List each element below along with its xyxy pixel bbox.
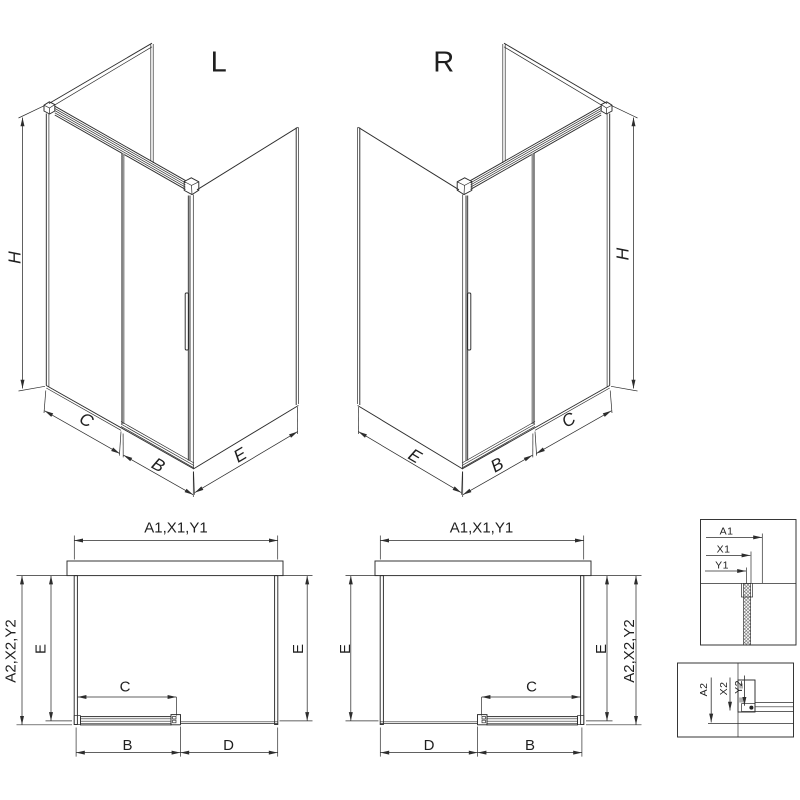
- dim-label-h-left: H: [5, 251, 25, 264]
- wall-hatch-band-right-plan: [375, 561, 591, 576]
- view-label-left: L: [211, 47, 228, 79]
- dim-label-c-left: C: [76, 408, 97, 432]
- plan-right-dim-a1: A1,X1,Y1: [450, 520, 513, 537]
- rail-roller-dot: [749, 706, 753, 710]
- dim-label-b-right: B: [487, 453, 507, 476]
- gasket-mark-bottom: [739, 698, 743, 703]
- plan-right-dim-a2: A2,X2,Y2: [621, 619, 638, 682]
- dim-label-c-right: C: [558, 408, 579, 432]
- view-label-right: R: [433, 47, 454, 79]
- iso-view-right-lines: [358, 43, 638, 497]
- detail-label-y1: Y1: [715, 559, 729, 571]
- plan-left-dim-b: B: [122, 737, 132, 754]
- detail-label-x2: X2: [718, 682, 730, 696]
- plan-right-dim-d: D: [424, 737, 435, 754]
- detail-bottom-rail-box: A2 X2 Y2: [678, 663, 794, 737]
- technical-drawing-page: L H C B E R H E B C A1,X1,Y1 A2,X2,Y2 E …: [0, 0, 800, 800]
- detail-label-y2: Y2: [733, 680, 745, 694]
- plan-left-dim-c: C: [120, 679, 131, 696]
- plan-right-dim-e-left: E: [337, 644, 354, 654]
- plan-left-dim-e-right: E: [290, 644, 307, 654]
- plan-right-dim-c: C: [526, 679, 537, 696]
- plan-right-dim-e-right: E: [593, 644, 610, 654]
- technical-drawing-canvas: L H C B E R H E B C A1,X1,Y1 A2,X2,Y2 E …: [0, 0, 800, 800]
- wall-hatch-band-left-plan: [67, 561, 283, 576]
- plan-left-dim-e-left: E: [33, 644, 50, 654]
- detail-label-a1: A1: [720, 526, 734, 538]
- dim-label-e-right: E: [405, 444, 426, 467]
- glass-section-hatched: [743, 583, 750, 645]
- dim-label-h-right: H: [613, 247, 633, 260]
- detail-label-x1: X1: [717, 544, 731, 556]
- detail-wall-profile-box: A1 X1 Y1: [701, 520, 797, 646]
- plan-left-dim-d: D: [223, 737, 234, 754]
- dim-label-e-left: E: [230, 443, 251, 466]
- detail-label-a2: A2: [698, 683, 710, 697]
- iso-view-left-lines: [19, 43, 299, 497]
- plan-right-dim-b: B: [525, 737, 535, 754]
- plan-left-dim-a1: A1,X1,Y1: [144, 520, 207, 537]
- plan-left-dim-a2: A2,X2,Y2: [3, 619, 20, 682]
- plan-view-left-lines: [17, 536, 313, 757]
- dim-label-b-left: B: [148, 453, 168, 476]
